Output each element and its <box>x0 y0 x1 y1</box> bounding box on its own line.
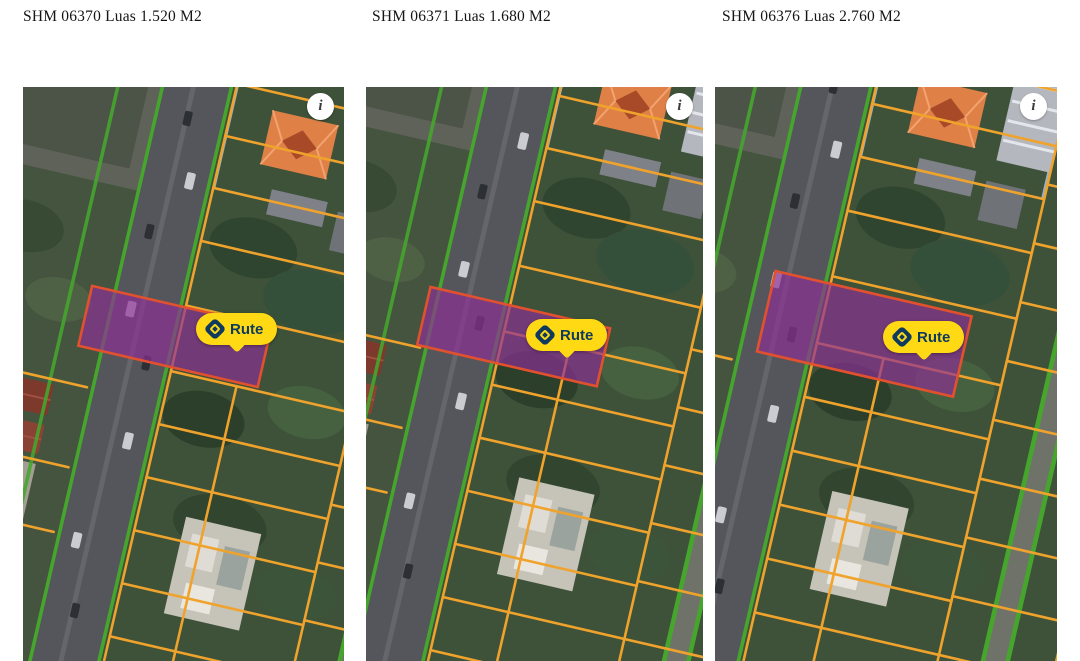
parcel-title-shm-06370: SHM 06370 Luas 1.520 M2 <box>23 8 202 26</box>
listing-maps-page: SHM 06370 Luas 1.520 M2 SHM 06371 Luas 1… <box>0 0 1080 661</box>
info-button[interactable]: i <box>307 93 334 120</box>
info-icon: i <box>677 98 681 115</box>
satellite-imagery <box>715 87 1057 661</box>
route-button[interactable]: Rute <box>526 319 607 351</box>
satellite-imagery <box>366 87 703 661</box>
route-button[interactable]: Rute <box>883 321 964 353</box>
parcel-title-shm-06371: SHM 06371 Luas 1.680 M2 <box>372 8 551 26</box>
route-label: Rute <box>560 328 593 343</box>
route-diamond-icon <box>534 324 557 347</box>
info-button[interactable]: i <box>666 93 693 120</box>
route-label: Rute <box>917 330 950 345</box>
parcel-title-shm-06376: SHM 06376 Luas 2.760 M2 <box>722 8 901 26</box>
route-diamond-icon <box>204 318 227 341</box>
info-icon: i <box>1031 98 1035 115</box>
map-view-shm-06376[interactable]: Rute i <box>715 87 1057 661</box>
route-diamond-icon <box>891 326 914 349</box>
route-label: Rute <box>230 322 263 337</box>
map-view-shm-06370[interactable]: Rute i <box>23 87 344 661</box>
map-view-shm-06371[interactable]: Rute i <box>366 87 703 661</box>
info-icon: i <box>318 98 322 115</box>
info-button[interactable]: i <box>1020 93 1047 120</box>
route-button[interactable]: Rute <box>196 313 277 345</box>
satellite-imagery <box>23 87 344 661</box>
